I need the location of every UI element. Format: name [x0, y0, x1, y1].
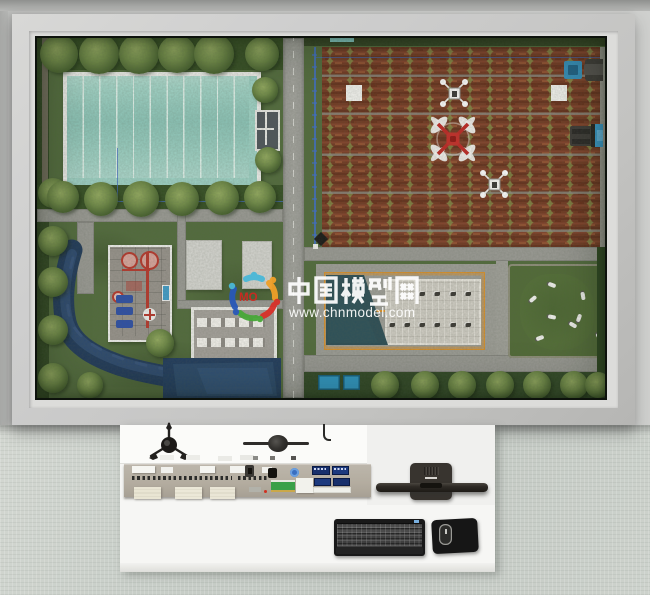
svg-text:MO: MO [239, 292, 258, 304]
